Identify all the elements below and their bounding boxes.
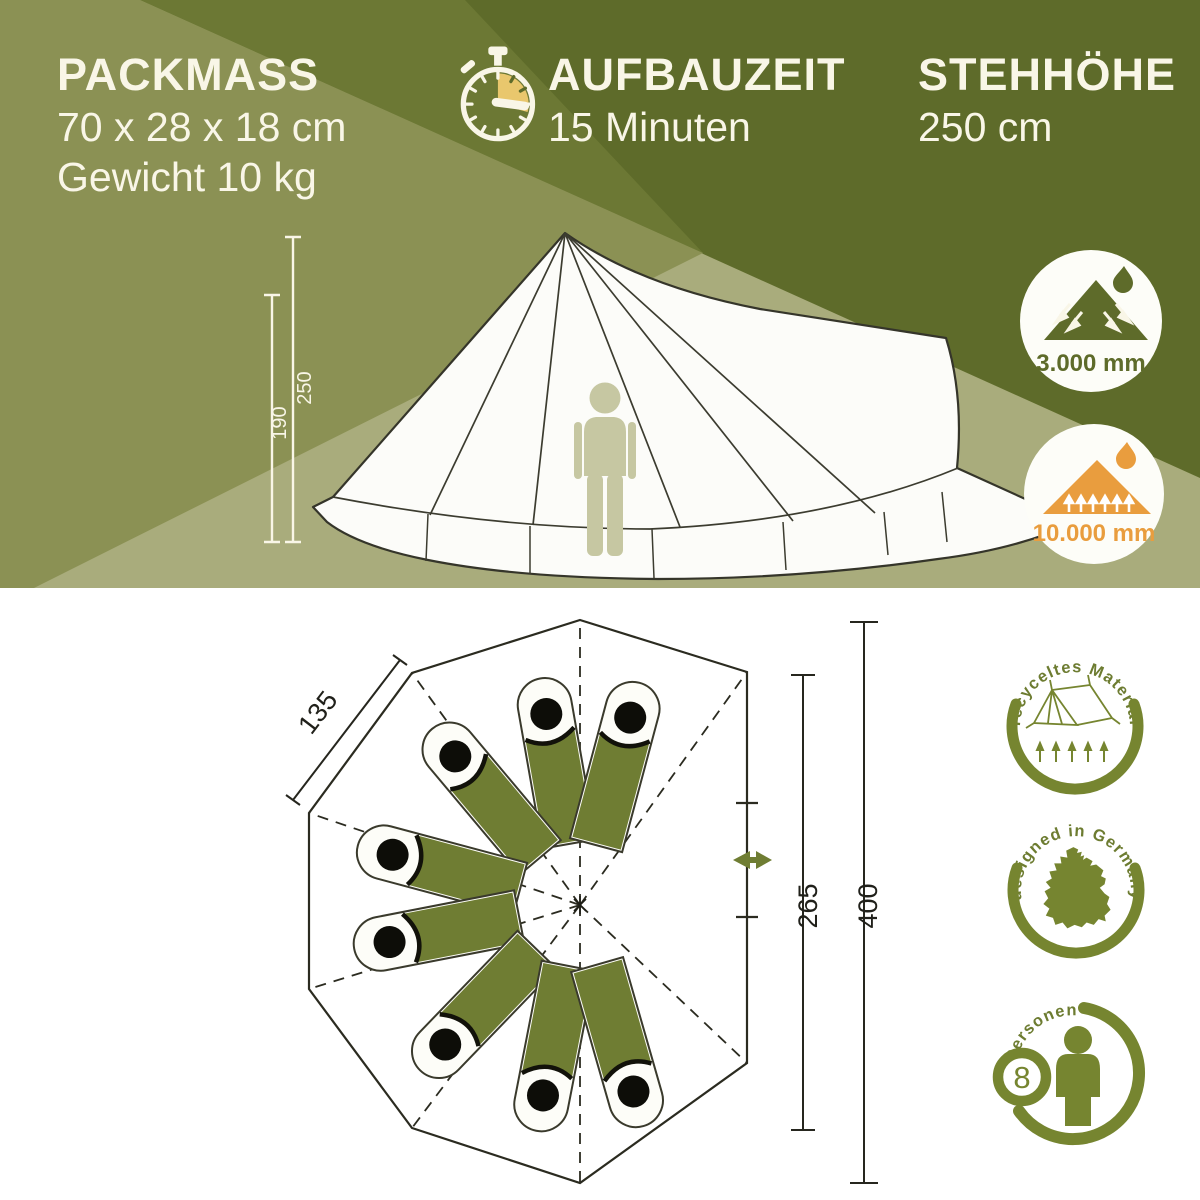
person-icon — [1056, 1026, 1100, 1126]
rain-shedding-mountain-icon — [1032, 264, 1150, 348]
dim-door-wall: 265 — [793, 883, 823, 928]
packmass-dimensions: 70 x 28 x 18 cm — [57, 102, 346, 152]
stopwatch-icon — [448, 38, 544, 150]
dim-total-width: 400 — [853, 883, 883, 928]
badge-designed-in-germany: designed in Germany — [1007, 822, 1145, 953]
badge-recycled-label: recyceltes Material — [1006, 658, 1144, 727]
waterproof-badge-10000: 10.000 mm — [1024, 424, 1164, 564]
germany-map-icon — [1043, 847, 1110, 928]
tent-infographic: 250 190 PACKMASS 70 x 28 x 18 cm Gewicht… — [0, 0, 1200, 1200]
waterproof-value: 10.000 mm — [1024, 520, 1164, 548]
dim-inner-height: 190 — [269, 406, 291, 439]
aufbauzeit-title: AUFBAUZEIT — [548, 48, 845, 102]
aufbauzeit-value: 15 Minuten — [548, 102, 845, 152]
water-drop-icon — [1113, 266, 1133, 293]
packmass-weight: Gewicht 10 kg — [57, 152, 346, 202]
badge-persons-count: 8 — [1013, 1060, 1030, 1095]
tent-pegs-icon — [1037, 743, 1107, 762]
top-banner: 250 190 PACKMASS 70 x 28 x 18 cm Gewicht… — [0, 0, 1200, 588]
stopwatch-hand — [496, 102, 525, 106]
dim-edge-length: 135 — [292, 686, 343, 740]
floor-plan-section: 400 265 135 recyceltes Material des — [0, 588, 1200, 1200]
packmass-title: PACKMASS — [57, 48, 346, 102]
water-drop-icon — [1116, 442, 1136, 469]
svg-text:recyceltes Material: recyceltes Material — [1006, 658, 1144, 727]
waterproof-value: 3.000 mm — [1020, 350, 1162, 378]
packmass-block: PACKMASS 70 x 28 x 18 cm Gewicht 10 kg — [57, 48, 346, 202]
stehhoehe-value: 250 cm — [918, 102, 1176, 152]
stehhoehe-block: STEHHÖHE 250 cm — [918, 48, 1176, 152]
stehhoehe-title: STEHHÖHE — [918, 48, 1176, 102]
dim-outer-height: 250 — [294, 371, 316, 404]
tent-drawing — [313, 233, 1076, 579]
waterproof-badge-3000: 3.000 mm — [1020, 250, 1162, 392]
badge-persons: Personen 8 — [998, 1001, 1139, 1139]
groundwater-mountain-icon — [1035, 438, 1153, 518]
floor-plan: 400 265 135 recyceltes Material des — [0, 588, 1200, 1200]
badge-recycled-material: recyceltes Material — [1006, 658, 1144, 789]
aufbauzeit-block: AUFBAUZEIT 15 Minuten — [548, 48, 845, 152]
